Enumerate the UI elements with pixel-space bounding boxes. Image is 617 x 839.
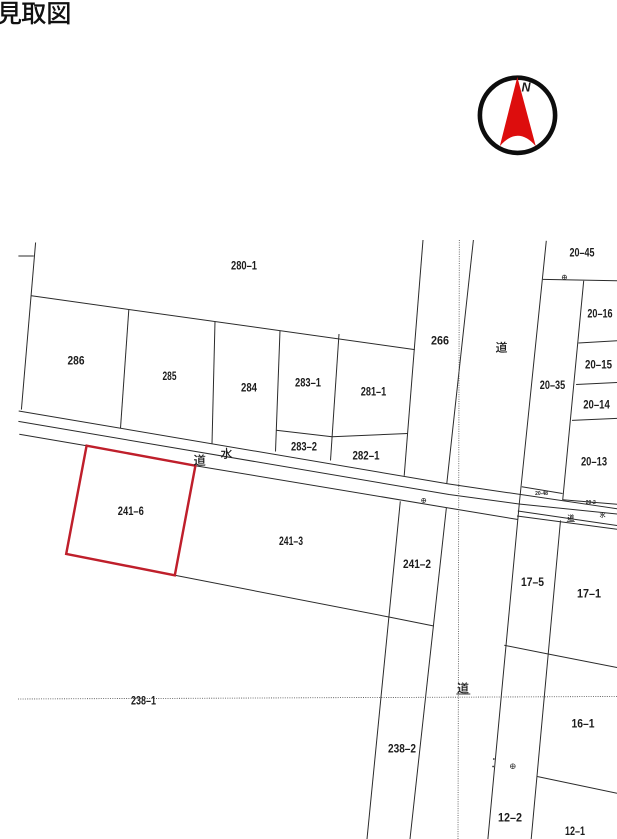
svg-text:282–1: 282–1 bbox=[353, 449, 380, 463]
svg-text:285: 285 bbox=[163, 369, 177, 383]
svg-text:281–1: 281–1 bbox=[361, 385, 387, 399]
svg-text:20–45: 20–45 bbox=[570, 246, 595, 260]
svg-text:283–2: 283–2 bbox=[291, 440, 317, 454]
svg-text:238–2: 238–2 bbox=[388, 742, 416, 756]
svg-text:20–15: 20–15 bbox=[585, 358, 612, 372]
svg-text:17–5: 17–5 bbox=[521, 575, 544, 589]
svg-text:280–1: 280–1 bbox=[231, 259, 257, 273]
svg-text:12–1: 12–1 bbox=[565, 824, 585, 838]
svg-text:284: 284 bbox=[241, 381, 257, 395]
svg-text:16–1: 16–1 bbox=[572, 717, 595, 731]
svg-text:20–16: 20–16 bbox=[587, 307, 613, 321]
svg-text:20-48: 20-48 bbox=[535, 491, 548, 497]
svg-text:20–35: 20–35 bbox=[540, 378, 566, 392]
svg-text:283–1: 283–1 bbox=[295, 376, 321, 390]
svg-text:266: 266 bbox=[431, 334, 449, 348]
svg-text:286: 286 bbox=[68, 354, 85, 368]
svg-text:241–3: 241–3 bbox=[279, 534, 303, 548]
svg-text:20–13: 20–13 bbox=[581, 455, 607, 469]
svg-text:17–1: 17–1 bbox=[577, 587, 601, 601]
svg-text:241–6: 241–6 bbox=[118, 504, 144, 518]
svg-text:12–2: 12–2 bbox=[498, 811, 522, 825]
svg-text:20–14: 20–14 bbox=[583, 398, 610, 412]
svg-text:20-2: 20-2 bbox=[586, 500, 596, 506]
svg-text:241–2: 241–2 bbox=[403, 557, 431, 571]
svg-text:238–1: 238–1 bbox=[131, 694, 156, 708]
svg-text:N: N bbox=[522, 81, 532, 95]
